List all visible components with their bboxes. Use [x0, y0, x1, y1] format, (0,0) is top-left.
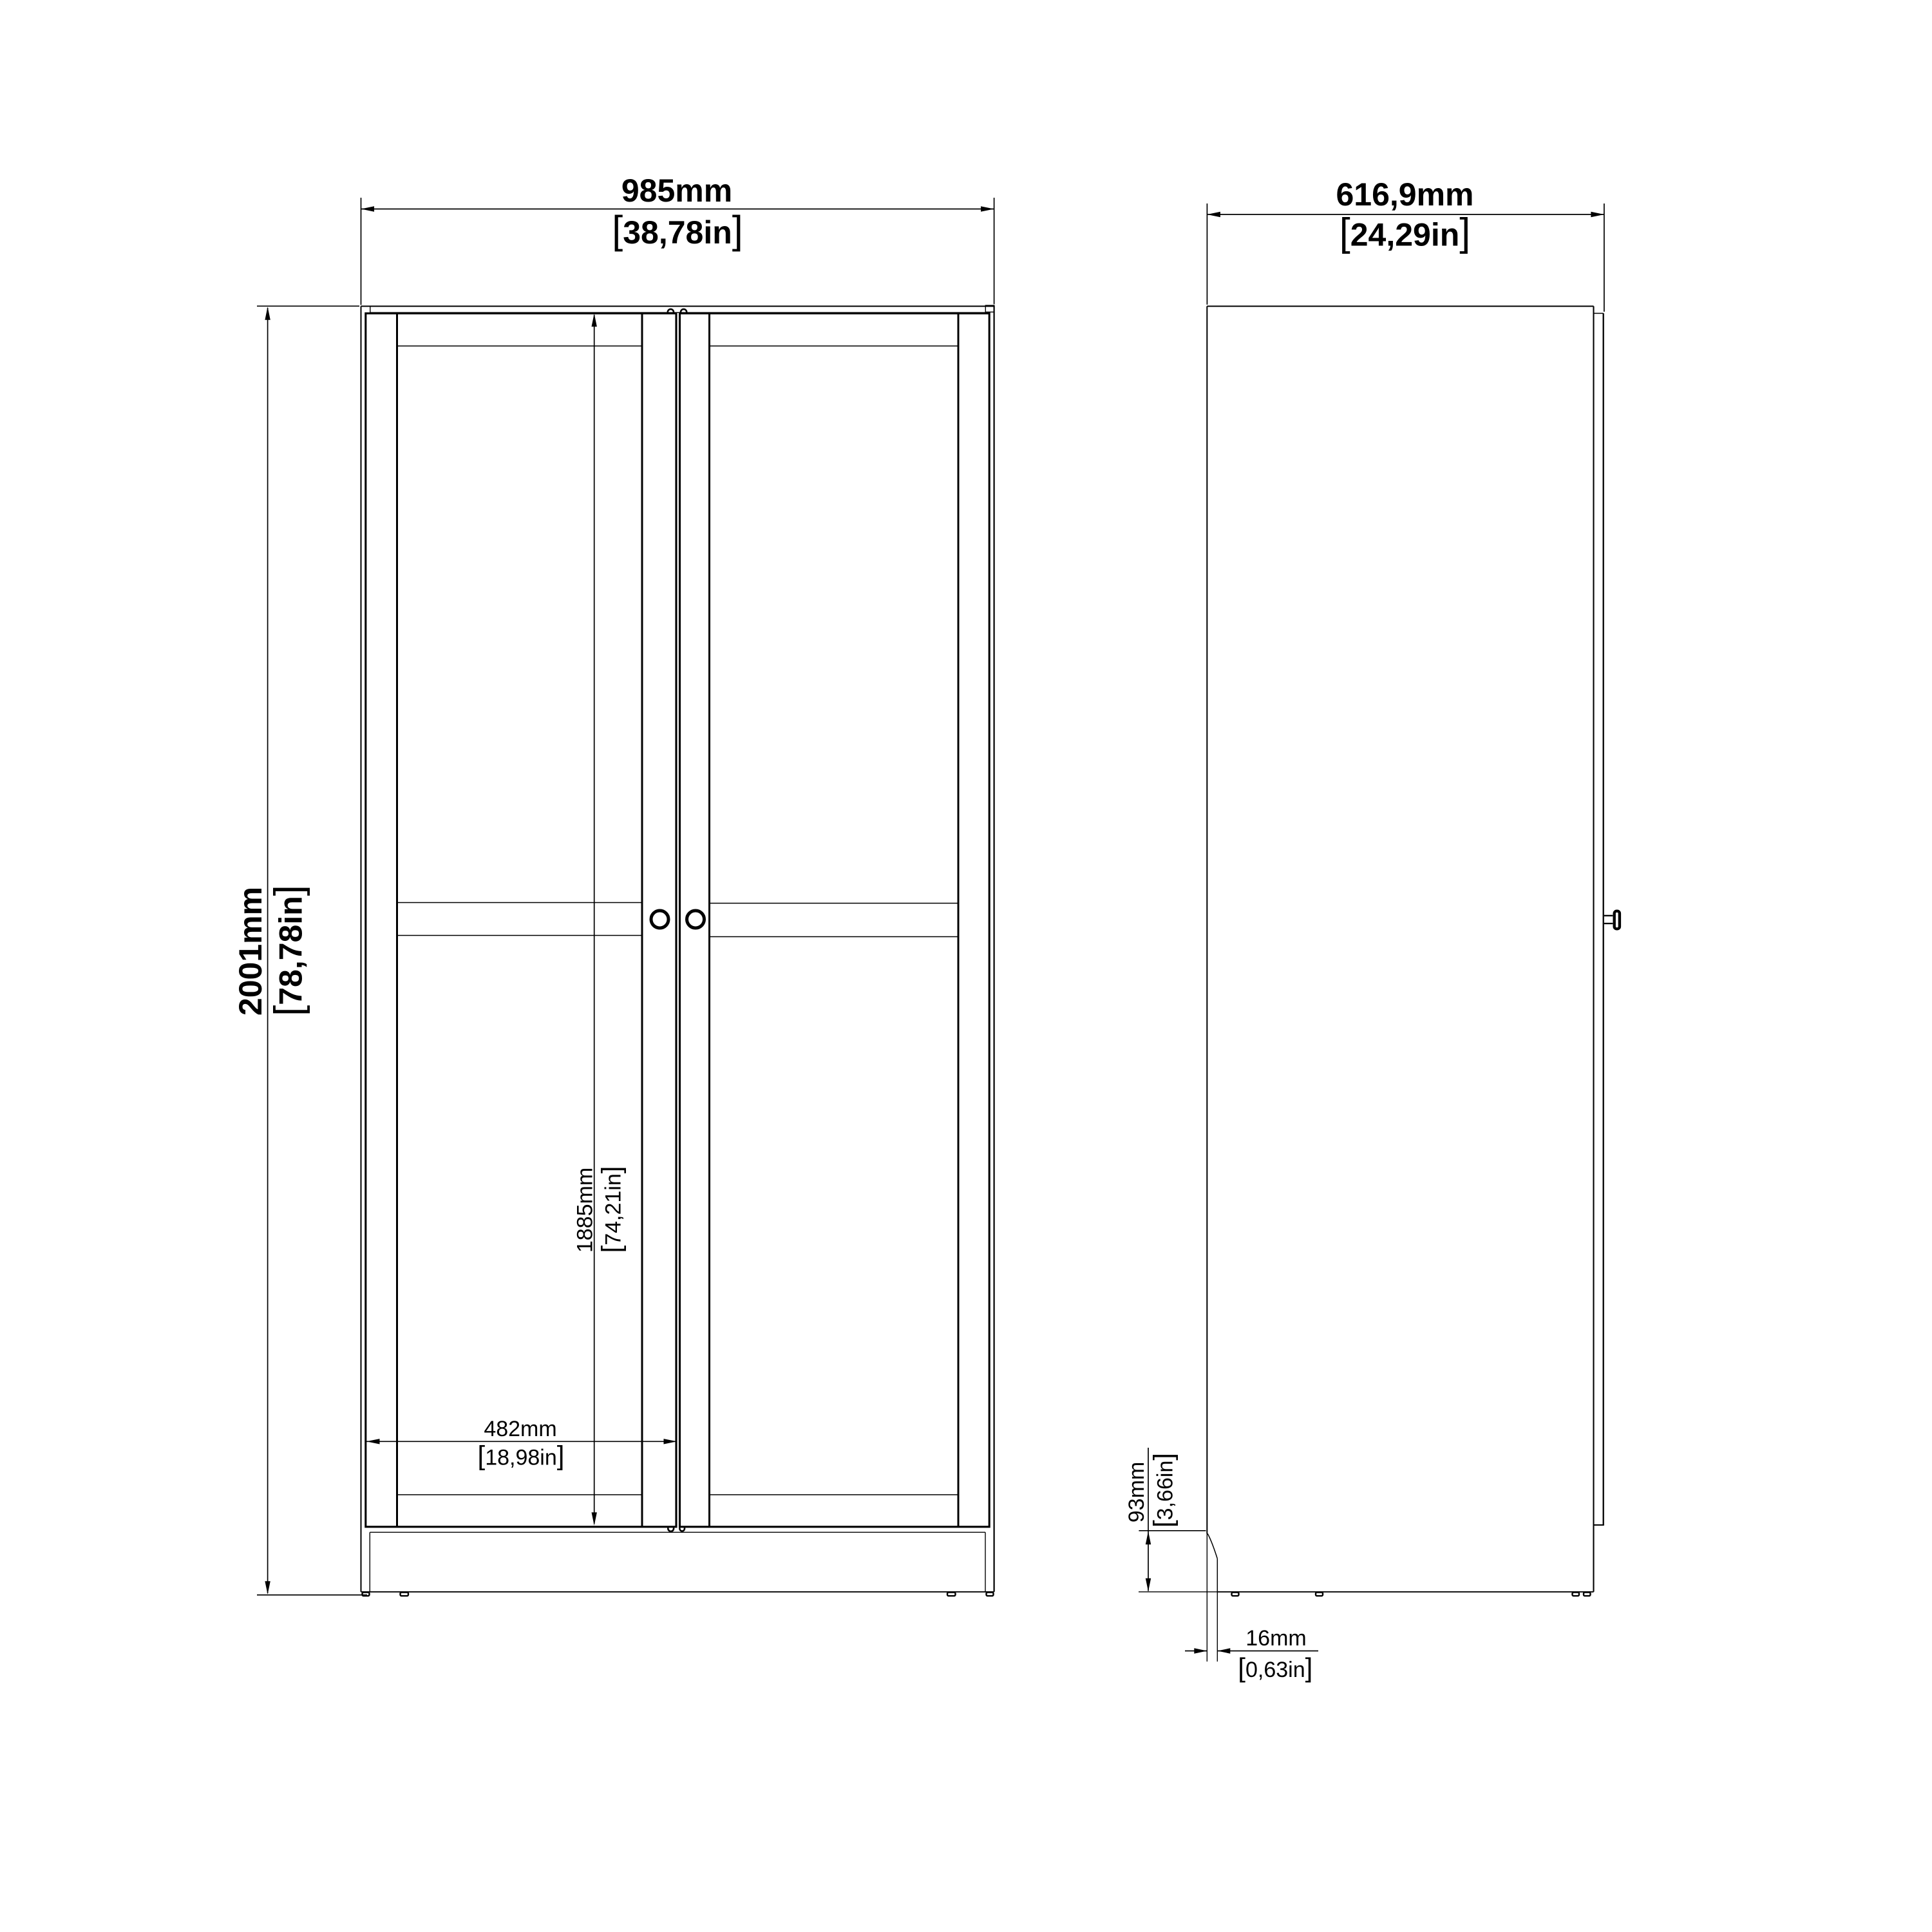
svg-text:616,9mm: 616,9mm [1336, 176, 1473, 213]
svg-text:[74,21in]: [74,21in] [596, 1166, 627, 1253]
svg-text:[3,66in]: [3,66in] [1148, 1453, 1179, 1528]
svg-text:2001mm: 2001mm [232, 887, 269, 1016]
svg-text:[0,63in]: [0,63in] [1238, 1653, 1312, 1683]
svg-text:1885mm: 1885mm [573, 1168, 598, 1253]
svg-text:985mm: 985mm [621, 173, 732, 209]
svg-text:482mm: 482mm [484, 1417, 556, 1441]
svg-text:[38,78in]: [38,78in] [612, 208, 743, 252]
svg-text:[18,98in]: [18,98in] [478, 1440, 565, 1470]
svg-text:[24,29in]: [24,29in] [1340, 211, 1470, 254]
svg-text:[78,78in]: [78,78in] [267, 885, 310, 1016]
svg-text:16mm: 16mm [1245, 1626, 1306, 1651]
svg-text:93mm: 93mm [1124, 1462, 1149, 1522]
